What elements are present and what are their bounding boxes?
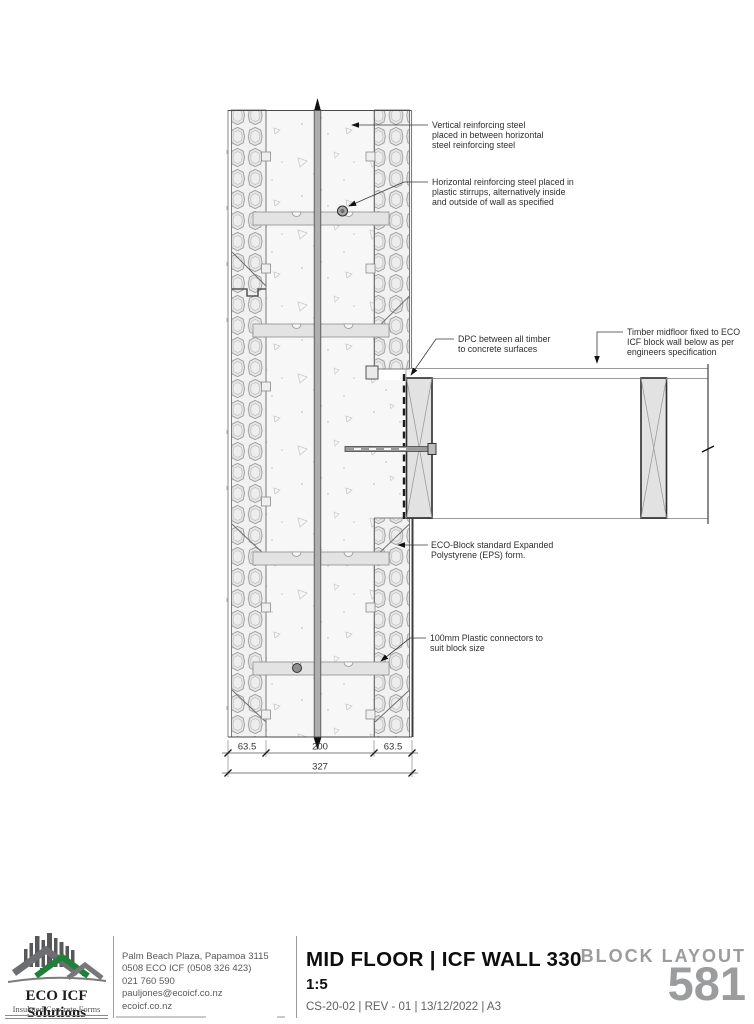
- logo-tagline: Insulated Concrete Forms: [0, 1004, 113, 1014]
- annotation-plastic-connectors: 100mm Plastic connectors to suit block s…: [430, 633, 543, 653]
- titleblock-divider: [296, 936, 297, 1018]
- logo-rule: [5, 1018, 108, 1019]
- contact-email[interactable]: pauljones@ecoicf.co.nz: [122, 988, 269, 1000]
- title-block: ECO ICF Solutions Insulated Concrete For…: [0, 930, 754, 1024]
- annotation-dpc: DPC between all timber to concrete surfa…: [458, 334, 550, 354]
- contact-website[interactable]: ecoicf.co.nz: [122, 1001, 269, 1013]
- annotation-eps-form: ECO-Block standard Expanded Polystyrene …: [431, 540, 553, 560]
- contact-address: Palm Beach Plaza, Papamoa 3115: [122, 951, 269, 963]
- dim-eps-left: 63.5: [238, 742, 257, 753]
- svg-text:DPC between all timber: DPC between all timber: [458, 334, 550, 344]
- contact-phone-tollfree: 0508 ECO ICF (0508 326 423): [122, 963, 269, 975]
- titleblock-divider: [113, 936, 114, 1018]
- svg-text:Timber midfloor fixed to ECO: Timber midfloor fixed to ECO: [627, 327, 740, 337]
- wall-section: [226, 98, 412, 750]
- dim-overall: 327: [312, 762, 328, 773]
- svg-text:placed in between horizontal: placed in between horizontal: [432, 130, 544, 140]
- svg-text:ICF block wall below as per: ICF block wall below as per: [627, 337, 734, 347]
- eps-cut-key: [366, 366, 378, 379]
- logo-window-green: [40, 968, 45, 973]
- svg-text:and outside of wall as specifi: and outside of wall as specified: [432, 197, 554, 207]
- annotation-vertical-steel: Vertical reinforcing steel placed in bet…: [432, 120, 544, 150]
- svg-text:100mm Plastic connectors to: 100mm Plastic connectors to: [430, 633, 543, 643]
- floor-joist: [641, 378, 667, 518]
- dim-core: 200: [312, 742, 328, 753]
- eps-panel-left: [232, 110, 267, 737]
- svg-text:Horizontal reinforcing steel p: Horizontal reinforcing steel placed in: [432, 177, 574, 187]
- contact-phone-mobile: 021 760 590: [122, 976, 269, 988]
- annotation-horizontal-steel: Horizontal reinforcing steel placed in p…: [432, 177, 574, 207]
- section-break-edge: [702, 364, 714, 524]
- svg-text:engineers specification: engineers specification: [627, 347, 717, 357]
- svg-text:steel reinforcing steel: steel reinforcing steel: [432, 140, 515, 150]
- svg-text:ECO-Block standard Expanded: ECO-Block standard Expanded: [431, 540, 553, 550]
- fineprint-page: [277, 1016, 285, 1018]
- logo-window-green: [82, 972, 86, 976]
- drawing-sheet: 63.5 200 63.5 327 Vertical reinforcing s…: [0, 0, 754, 1024]
- svg-text:suit block size: suit block size: [430, 643, 485, 653]
- svg-text:Polystyrene (EPS) form.: Polystyrene (EPS) form.: [431, 550, 525, 560]
- drawing-scale: 1:5: [306, 976, 328, 993]
- svg-text:Vertical reinforcing steel: Vertical reinforcing steel: [432, 120, 525, 130]
- dim-eps-right: 63.5: [384, 742, 403, 753]
- vertical-rebar: [314, 98, 322, 750]
- contact-details: Palm Beach Plaza, Papamoa 3115 0508 ECO …: [122, 951, 269, 1013]
- company-logo: [6, 932, 108, 986]
- wall-detail-drawing: 63.5 200 63.5 327 Vertical reinforcing s…: [0, 0, 754, 930]
- series-number: 581: [446, 960, 746, 1007]
- logo-swoosh: [8, 978, 106, 982]
- svg-text:to concrete surfaces: to concrete surfaces: [458, 344, 538, 354]
- fineprint-path: [116, 1016, 206, 1018]
- annotation-timber-midfloor: Timber midfloor fixed to ECO ICF block w…: [627, 327, 740, 357]
- logo-rule: [5, 1015, 108, 1016]
- svg-text:plastic stirrups, alternativel: plastic stirrups, alternatively inside: [432, 187, 566, 197]
